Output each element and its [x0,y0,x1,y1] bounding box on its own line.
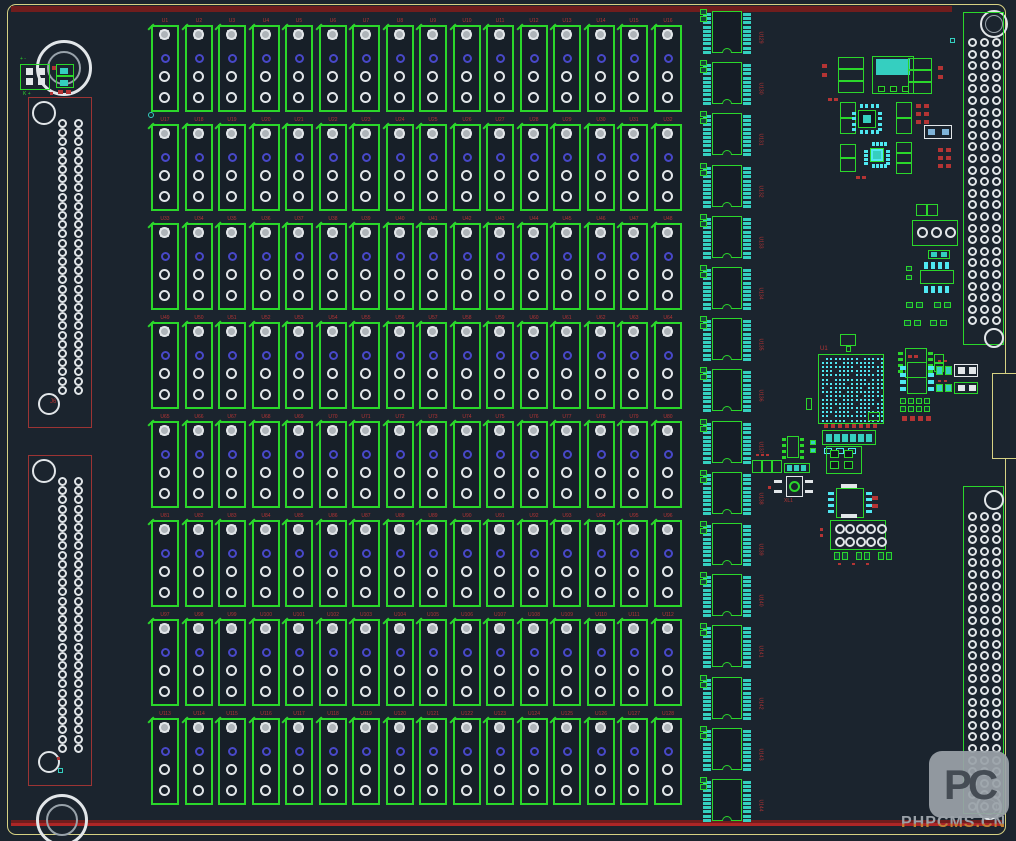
relay-pad [427,389,438,400]
bga-ball [864,391,866,393]
bga-ball [851,358,853,360]
ic-pad [743,546,751,549]
ic-pad [703,290,711,293]
soic-pad [928,352,933,355]
bypass-cap-pad [700,60,707,66]
qfn-pad [872,164,875,168]
relay-notch [315,122,322,129]
relay-pad [159,425,170,436]
relay-pad [394,170,405,181]
th-pad [980,686,989,695]
relay-ref-label: U33 [151,216,179,222]
ic-pad [703,601,711,604]
relay-pad [226,326,237,337]
th-pad [968,547,977,556]
bga-ball [872,391,874,393]
bga-ball [851,420,853,422]
relay-pad [260,269,271,280]
qfn-pad [886,162,890,165]
th-pad [992,512,1001,521]
relay-pad [494,368,505,379]
th-pad [58,643,67,652]
relay-pad [360,785,371,796]
relay-via [396,252,405,261]
ic-pad [743,503,751,506]
qfn-pad [884,142,887,146]
relay-pad [226,764,237,775]
relay-pad [595,524,606,535]
ic-chip-body [712,779,742,821]
relay-pad [159,170,170,181]
relay-pad [494,587,505,598]
th-pad [58,744,67,753]
relay-pad [327,368,338,379]
relay-pad [494,623,505,634]
th-pad [992,582,1001,591]
qfn-pad [864,158,868,161]
relay-notch [549,122,556,129]
ic-pad [743,495,751,498]
relay-ref-label: U5 [285,18,313,24]
relay-ref-label: U83 [218,513,246,519]
bga-ball [847,403,849,405]
relay-pad [561,170,572,181]
cap-pads [856,552,862,560]
soic-pad [900,387,906,391]
relay-pad [394,488,405,499]
relay-ref-label: U24 [386,117,414,123]
relay-via [228,747,237,756]
relay-pad [595,722,606,733]
bga-ball [877,383,879,385]
ic-pad [703,354,711,357]
bga-ball [851,415,853,417]
ic-pad [743,345,751,348]
ic-pad [743,529,751,532]
relay-via [295,747,304,756]
relay-via [597,549,606,558]
bga-ball [835,358,837,360]
bga-ball [843,370,845,372]
soic-pad [900,373,906,377]
th-pad [74,661,83,670]
relay-ref-label: U84 [252,513,280,519]
relay-pad [494,71,505,82]
relay-pad [260,665,271,676]
ic-pad [703,764,711,767]
relay-via [362,252,371,261]
bga-ball [881,362,883,364]
ic-chip-notch [722,765,732,770]
bypass-cap-pad [700,630,707,636]
ic-pad [743,661,751,664]
smd-pad [969,385,976,391]
th-pad [74,377,83,386]
relay-via [161,153,170,162]
relay-via [530,747,539,756]
relay-via [496,549,505,558]
smd-pad [945,384,952,392]
relay-notch [147,23,154,30]
bga-ball [881,399,883,401]
ic-ref-label: U131 [757,134,762,146]
relay-pad [260,722,271,733]
relay-pad [327,170,338,181]
th-pad [74,606,83,615]
relay-pad [494,29,505,40]
th-pad [968,131,977,140]
soic-pad [828,510,834,513]
pad-block [924,398,930,404]
relay-pad [193,623,204,634]
bypass-cap-pad [700,323,707,329]
relay-notch [650,221,657,228]
cap-array [840,158,856,172]
th-pad [58,735,67,744]
ic-pad [743,794,751,797]
ic-pad [703,188,711,191]
relay-pad [528,389,539,400]
relay-pad [394,92,405,103]
power-connector-pad [26,68,33,75]
relay-pad [260,326,271,337]
smd-pad [924,104,929,108]
ic-pad [743,205,751,208]
socket-pad [835,524,845,534]
relay-pad [628,587,639,598]
relay-pad [461,524,472,535]
relay-pad [628,566,639,577]
relay-pad [461,665,472,676]
bga-ball [856,415,858,417]
th-pad [58,377,67,386]
ic-chip-body [712,677,742,719]
ic-pad [743,51,751,54]
bga-ball [843,415,845,417]
relay-pad [427,566,438,577]
relay-pad [561,686,572,697]
bga-ball [868,391,870,393]
socket-pad [835,537,845,547]
relay-pad [427,686,438,697]
th-pad [74,477,83,486]
th-pad [980,663,989,672]
driver-pad [844,461,853,469]
relay-pad [360,467,371,478]
th-pad [58,349,67,358]
bga-ball [847,407,849,409]
relay-via [161,351,170,360]
silkscreen-text-marks [873,424,877,428]
th-pad [58,606,67,615]
relay-ref-label: U31 [620,117,648,123]
bga-ball [868,383,870,385]
relay-pad [193,722,204,733]
relay-pad [360,425,371,436]
relay-ref-label: U60 [520,315,548,321]
relay-notch [348,716,355,723]
relay-pad [260,191,271,202]
relay-via [295,153,304,162]
relay-ref-label: U35 [218,216,246,222]
th-pad [968,524,977,533]
ic-chip-notch [722,509,732,514]
ic-chip-notch [722,662,732,667]
bga-ball [822,407,824,409]
relay-via [630,549,639,558]
relay-notch [248,320,255,327]
relay-via [563,549,572,558]
relay-pad [394,368,405,379]
soic-pad [938,286,942,293]
smd-pad [906,266,912,271]
relay-pad [628,290,639,301]
relay-pad [595,488,606,499]
th-pad [980,721,989,730]
relay-via [161,54,170,63]
relay-notch [616,518,623,525]
ic-pad [743,226,751,229]
th-pad [980,582,989,591]
relay-pad [260,29,271,40]
relay-pad [226,389,237,400]
relay-via [597,351,606,360]
cap-array [838,57,864,69]
th-pad [992,270,1001,279]
bga-ball [856,387,858,389]
relay-pad [561,467,572,478]
th-pad [74,698,83,707]
qfn-pad [878,128,882,131]
relay-pad [360,227,371,238]
ic-pad [703,42,711,45]
ic-pad [743,738,751,741]
ic-pad [743,508,751,511]
ic-pad [703,196,711,199]
relay-via [597,153,606,162]
bga-ball [847,391,849,393]
relay-via [630,450,639,459]
relay-pad [461,368,472,379]
ic-pad [743,333,751,336]
relay-pad [260,170,271,181]
th-pad [980,73,989,82]
bga-ball [830,399,832,401]
relay-ref-label: U117 [285,711,313,717]
bga-ball [868,366,870,368]
strip-pad [834,434,840,442]
ic-pad [743,26,751,29]
th-pad [58,505,67,514]
cap-pads [916,302,923,308]
ic-ref-label: U143 [757,749,762,761]
bga-ball [835,374,837,376]
smd-pad [872,504,878,508]
smd-pad [938,156,943,160]
relay-ref-label: U16 [654,18,682,24]
relay-pad [628,227,639,238]
cap-array [838,69,864,81]
relay-pad [461,764,472,775]
relay-ref-label: U68 [252,414,280,420]
relay-via [396,153,405,162]
relay-pad [394,722,405,733]
relay-via [463,153,472,162]
relay-ref-label: U26 [453,117,481,123]
soic-pad [938,262,942,269]
relay-ref-label: U88 [386,513,414,519]
relay-ref-label: U77 [553,414,581,420]
relay-pad [461,623,472,634]
relay-pad [394,785,405,796]
relay-pad [494,665,505,676]
ic-pad [703,605,711,608]
relay-notch [315,221,322,228]
relay-notch [516,122,523,129]
bypass-cap-pad [700,163,707,169]
relay-pad [226,128,237,139]
th-pad [968,108,977,117]
smd-pad [936,384,943,392]
ic-pad [743,444,751,447]
ic-pad [743,21,751,24]
relay-ref-label: U125 [553,711,581,717]
relay-via [195,153,204,162]
cap-pads [930,320,937,326]
silkscreen-dot [908,355,912,358]
silkscreen-text-marks [831,424,835,428]
th-pad [968,512,977,521]
strip-pad [858,434,864,442]
bga-ball [826,407,828,409]
ic-pad [703,149,711,152]
th-pad [968,166,977,175]
driver-pad [844,450,853,458]
relay-notch [482,716,489,723]
relay-ref-label: U107 [486,612,514,618]
bga-ball [877,366,879,368]
bga-ball [830,420,832,422]
th-pad [968,96,977,105]
bypass-cap-pad [700,521,707,527]
relay-pad [394,191,405,202]
relay-pad [561,71,572,82]
qfn-pad [876,142,879,146]
bga-ball [839,395,841,397]
relay-via [329,351,338,360]
relay-ref-label: U55 [352,315,380,321]
relay-via [329,648,338,657]
cap-array [896,142,912,153]
relay-ref-label: U120 [386,711,414,717]
relay-ref-label: U72 [386,414,414,420]
relay-pad [595,326,606,337]
bga-ball [881,407,883,409]
ic-pad [703,231,711,234]
ic-pad [743,68,751,71]
silkscreen-dot [866,563,869,565]
bga-ball [868,362,870,364]
ic-pad [743,652,751,655]
ic-pad [703,806,711,809]
relay-pad [159,623,170,634]
relay-ref-label: U38 [319,216,347,222]
relay-ref-label: U69 [285,414,313,420]
relay-pad [595,425,606,436]
bga-ball [877,379,879,381]
relay-pad [394,128,405,139]
relay-ref-label: U44 [520,216,548,222]
th-pad [74,257,83,266]
th-pad [74,211,83,220]
ic-pad [743,286,751,289]
th-pad [74,597,83,606]
ic-pad [743,525,751,528]
ic-pad [743,358,751,361]
driver-pad [830,461,839,469]
relay-notch [583,617,590,624]
bypass-cap-pad [700,470,707,476]
ic-pad [743,759,751,762]
cap-pads [886,552,892,560]
soic-pad [782,450,786,453]
relay-ref-label: U32 [654,117,682,123]
relay-ref-label: U63 [620,315,648,321]
bga-ball [822,383,824,385]
th-pad [968,698,977,707]
th-pad [992,640,1001,649]
relay-pad [427,227,438,238]
ic-pad [743,307,751,310]
smd-pad [958,385,965,391]
bga-ball [822,415,824,417]
relay-ref-label: U57 [419,315,447,321]
ic-pad [743,452,751,455]
bga-ball [881,370,883,372]
relay-notch [516,320,523,327]
relay-pad [360,566,371,577]
relay-pad [360,722,371,733]
ic-pad [743,781,751,784]
bga-ball [851,391,853,393]
bga-ball [864,420,866,422]
relay-via [161,747,170,756]
relay-pad [427,368,438,379]
relay-notch [348,122,355,129]
cap-pads [878,552,884,560]
bga-ball [860,379,862,381]
relay-notch [482,221,489,228]
relay-ref-label: U97 [151,612,179,618]
relay-ref-label: U40 [386,216,414,222]
relay-notch [415,23,422,30]
relay-notch [382,617,389,624]
relay-pad [494,488,505,499]
relay-notch [549,419,556,426]
qfn-pad [852,117,856,120]
relay-pad [360,389,371,400]
ic-pad [743,294,751,297]
relay-notch [281,320,288,327]
relay-pad [427,587,438,598]
relay-pad [226,566,237,577]
th-pad [74,147,83,156]
relay-ref-label: U87 [352,513,380,519]
th-pad [968,663,977,672]
relay-pad [528,467,539,478]
smd-pad [918,416,923,421]
relay-notch [315,320,322,327]
